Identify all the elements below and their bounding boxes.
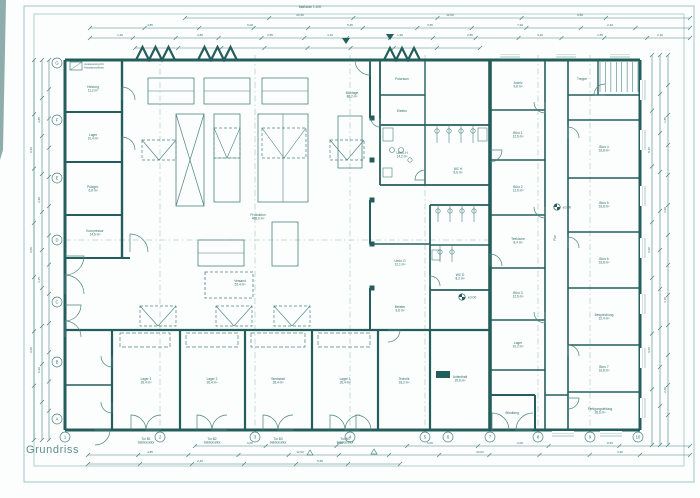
fixture — [436, 371, 450, 378]
dim-label: 24,00 — [476, 450, 484, 454]
door-label: Sektionaltor — [204, 441, 222, 445]
window — [610, 52, 630, 54]
room-label: 26,4 m² — [207, 381, 218, 385]
dim-label: 8,40 — [29, 147, 33, 153]
floor-plan: 24,3612,009,804,856,005,453,657,202,401,… — [0, 0, 700, 498]
room-label: Treppe — [577, 77, 587, 81]
room-label: 9,6 m² — [395, 309, 404, 313]
room-label: 86,2 m² — [347, 95, 358, 99]
plan-title: Grundriss — [26, 444, 79, 456]
sheet-note: Maßstab 1:100 — [299, 5, 322, 9]
grid-bubble-label: E — [56, 176, 59, 181]
dim-label: 1,85 — [663, 117, 667, 123]
room-label: 26,4 m² — [141, 381, 152, 385]
room-label: 12,6 m² — [513, 189, 524, 193]
window — [640, 348, 642, 368]
room-label: 11,2 m² — [88, 89, 99, 93]
room-label: 14,6 m² — [90, 233, 101, 237]
room-label: 16,8 m² — [599, 205, 610, 209]
dim-label: 5,45 — [347, 23, 353, 27]
grid-bubble-label: A — [56, 417, 59, 422]
dim-label: 6,00 — [517, 441, 523, 445]
room-label: 16,8 m² — [599, 261, 610, 265]
room-label: 12,6 m² — [513, 135, 524, 139]
room-label: 52,4 m² — [235, 283, 246, 287]
dim-label: 8,40 — [647, 147, 651, 153]
room-label: 8,4 m² — [513, 241, 522, 245]
column — [370, 242, 375, 247]
dim-label: 7,20 — [517, 23, 523, 27]
room-label: 26,4 m² — [340, 381, 351, 385]
room-label: 26,4 m² — [273, 381, 284, 385]
dim-label: 2,40 — [607, 23, 613, 27]
dim-label: 2,40 — [197, 459, 203, 463]
door-label: Sektionaltor — [337, 441, 355, 445]
dim-label: 2,60 — [663, 387, 667, 393]
drawing-sheet: 24,3612,009,804,856,005,453,657,202,401,… — [0, 0, 700, 498]
dim-label: 3,85 — [37, 117, 41, 123]
room-label: 12,6 m² — [513, 295, 524, 299]
room-label: 16,8 m² — [599, 149, 610, 153]
dim-label: 24,36 — [296, 13, 304, 17]
dim-label: 9,80 — [577, 13, 583, 17]
dim-label: 5,20 — [37, 367, 41, 373]
room-label: 468,0 m² — [252, 217, 265, 221]
door-label: Sektionaltor — [138, 441, 156, 445]
level-text: ±0.00 — [563, 206, 572, 210]
dim-label: 6,00 — [29, 247, 33, 253]
room-label: Windfang — [505, 411, 519, 415]
window — [640, 398, 642, 418]
room-label: Putzraum — [395, 77, 409, 81]
grid-bubble-label: D — [55, 238, 58, 243]
dim-label: 9,60 — [647, 347, 651, 353]
column — [370, 286, 375, 291]
window — [640, 238, 642, 258]
dim-label: 2,10 — [657, 33, 663, 37]
dim-label: 2,90 — [37, 197, 41, 203]
dim-label: 1,20 — [117, 33, 123, 37]
dim-label: 2,55 — [267, 33, 273, 37]
window — [640, 80, 642, 100]
room-label: 8,6 m² — [453, 171, 462, 175]
dim-label: 6,00 — [647, 247, 651, 253]
dim-label: 6,00 — [247, 23, 253, 27]
room-label: 28,6 m² — [595, 411, 606, 415]
column — [370, 198, 375, 203]
room-label: 14,2 m² — [397, 155, 408, 159]
window — [556, 52, 576, 54]
legend-note: Hausanschluss — [84, 65, 104, 69]
dim-label: 3,40 — [537, 33, 543, 37]
dim-label: 5,65 — [317, 459, 323, 463]
room-label: 22,4 m² — [599, 317, 610, 321]
column — [370, 116, 375, 121]
room-label: 10,2 m² — [513, 345, 524, 349]
window — [640, 294, 642, 314]
room-label: 9,8 m² — [513, 85, 522, 89]
room-label: 20,6 m² — [455, 379, 466, 383]
dim-label: 3,15 — [663, 297, 667, 303]
room-label: Flur — [553, 234, 557, 240]
dim-label: 3,80 — [197, 33, 203, 37]
window — [640, 186, 642, 206]
grid-bubble-label: B — [56, 360, 59, 365]
level-text: ±0.00 — [468, 296, 477, 300]
window — [500, 52, 520, 54]
grid-bubble-label: 10 — [636, 435, 641, 440]
dim-label: 2,90 — [663, 207, 667, 213]
dim-label: 1,55 — [597, 33, 603, 37]
room-label: 10,4 m² — [88, 137, 99, 141]
dim-label: 9,60 — [29, 347, 33, 353]
dim-label: 1,90 — [397, 33, 403, 37]
room-label: 18,2 m² — [399, 381, 410, 385]
dim-label: 3,65 — [427, 23, 433, 27]
dim-label: 12,50 — [296, 450, 304, 454]
room-label: 16,8 m² — [599, 369, 610, 373]
dim-label: 4,85 — [147, 450, 153, 454]
dim-label: 6,00 — [427, 441, 433, 445]
door-label: Sektionaltor — [270, 441, 288, 445]
dim-label: 8,45 — [607, 441, 613, 445]
room-label: 12,1 m² — [395, 263, 406, 267]
window — [600, 431, 622, 433]
grid-bubble-label: F — [56, 118, 59, 123]
room-label: 8,2 m² — [455, 277, 464, 281]
dim-label: 3,20 — [617, 450, 623, 454]
column — [370, 158, 375, 163]
grid-bubble-label: G — [55, 61, 58, 66]
window — [640, 130, 642, 150]
dim-label: 2,85 — [467, 33, 473, 37]
dim-label: 12,00 — [446, 13, 454, 17]
window — [552, 431, 574, 433]
grid-bubble-label: C — [55, 300, 58, 305]
dim-label: 4,10 — [327, 33, 333, 37]
room-label: 6,8 m² — [88, 189, 97, 193]
dim-label: 4,15 — [37, 277, 41, 283]
dim-label: 4,85 — [147, 23, 153, 27]
room-label: Elektro — [397, 109, 407, 113]
